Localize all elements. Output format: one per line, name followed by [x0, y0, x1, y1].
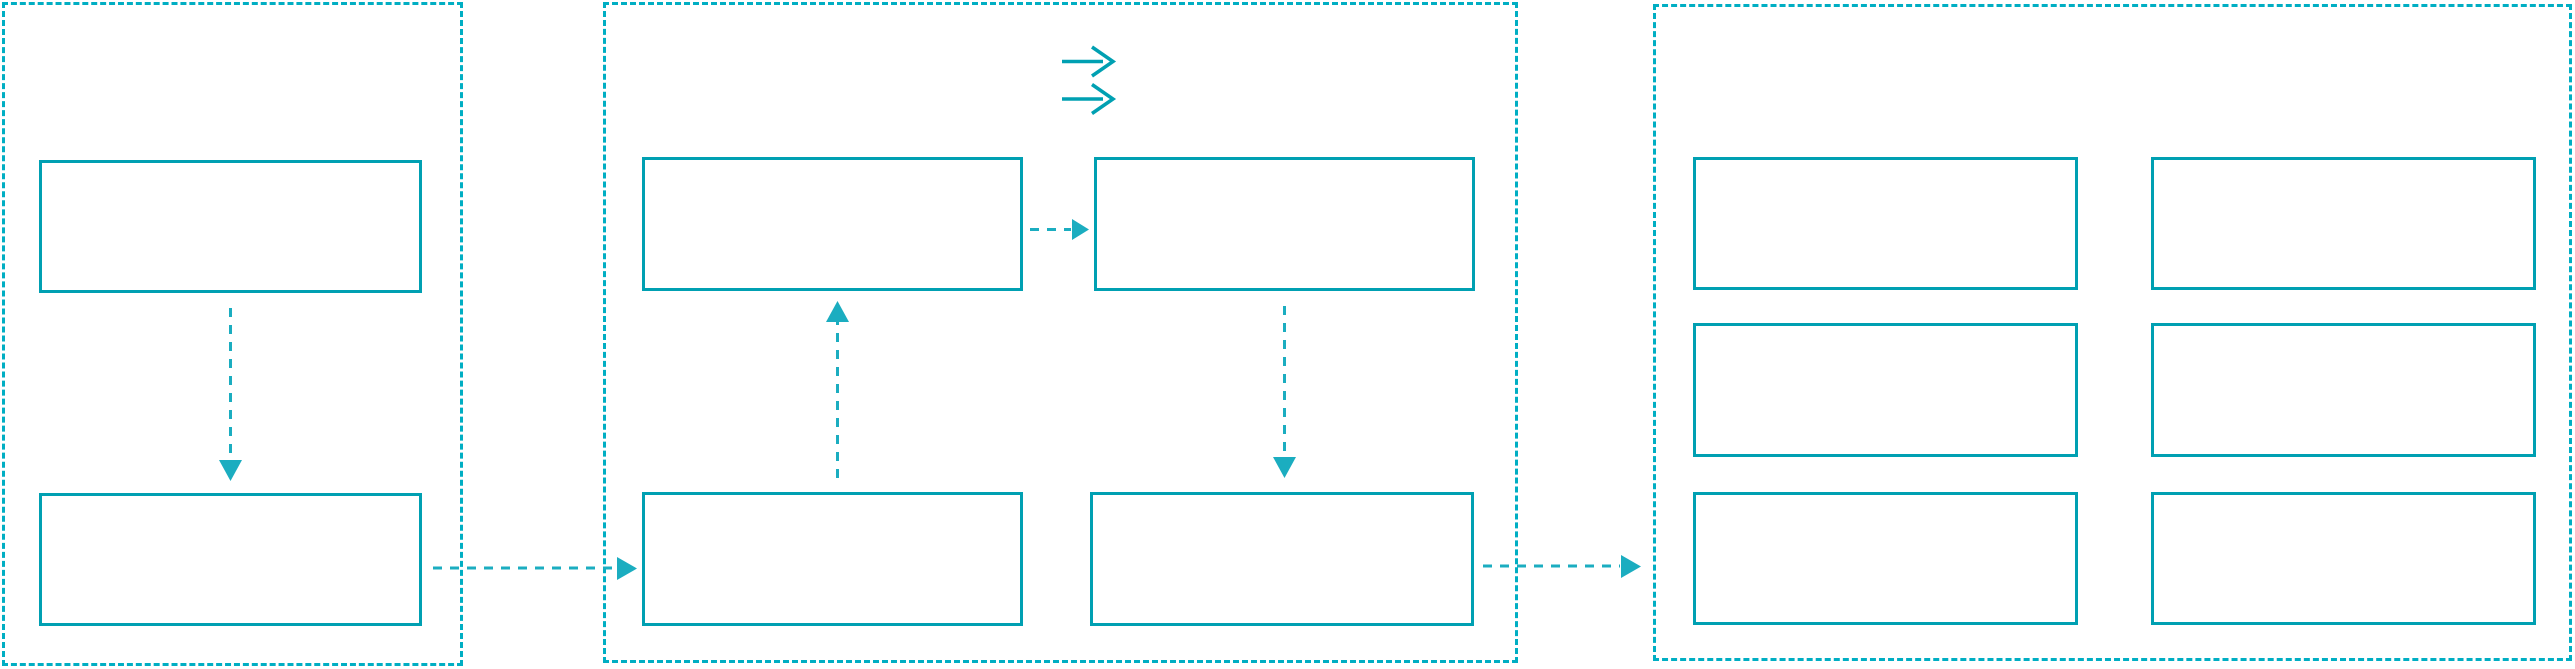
right-box-row1-col1: [1693, 157, 2078, 290]
middle-box-top-right: [1094, 157, 1475, 291]
right-box-row3-col2: [2151, 492, 2536, 625]
middle-box-bottom-left: [642, 492, 1023, 626]
right-box-row2-col2: [2151, 323, 2536, 457]
left-box-bottom: [39, 493, 422, 626]
right-box-row2-col1: [1693, 323, 2078, 457]
middle-box-top-left: [642, 157, 1023, 291]
middle-box-bottom-right: [1090, 492, 1474, 626]
left-box-top: [39, 160, 422, 293]
right-box-row1-col2: [2151, 157, 2536, 290]
right-box-row3-col1: [1693, 492, 2078, 625]
diagram-canvas: [0, 0, 2575, 669]
